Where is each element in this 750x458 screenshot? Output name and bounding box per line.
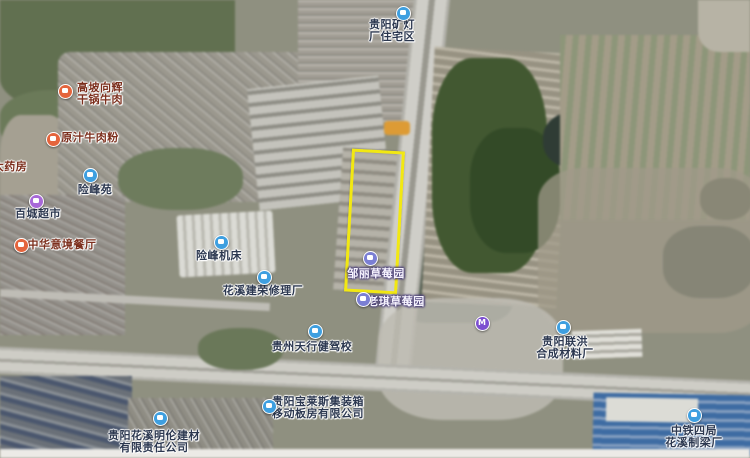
poi-label-line: 贵阳宝莱斯集装箱 [272,396,364,408]
poi-label-line: 原汁牛肉粉 [61,132,119,144]
food-marker-icon[interactable] [58,84,73,99]
gaopo-dry-pot-beef-label[interactable]: 高坡向辉干锅牛肉 [77,82,123,105]
poi-label-line: 贵阳花溪明伦建材 [108,430,200,442]
poi-label-line: 中华意境餐厅 [28,239,97,251]
xianfeng-yuan-label[interactable]: 险峰苑 [78,184,113,196]
satellite-map[interactable]: 贵阳矿灯厂住宅区高坡向辉干锅牛肉原汁牛肉粉大药房险峰苑百城超市中华意境餐厅险峰机… [0,0,750,458]
lianhong-materials-factory-label[interactable]: 贵阳联洪合成材料厂 [536,336,594,359]
food-marker-icon[interactable] [46,132,61,147]
zhonghua-restaurant-label[interactable]: 中华意境餐厅 [28,239,97,251]
yuanzhi-beef-noodles-label[interactable]: 原汁牛肉粉 [61,132,119,144]
poi-label-line: 花溪制梁厂 [665,437,723,449]
zhongtie-beam-factory-label[interactable]: 中铁四局花溪制梁厂 [665,425,723,448]
business-marker-icon[interactable] [262,399,277,414]
minglun-building-materials-label[interactable]: 贵阳花溪明伦建材有限责任公司 [108,430,200,453]
poi-label-line: 厂住宅区 [369,31,415,43]
poi-label-line: 移动板房有限公司 [272,408,364,420]
shopping-marker-icon[interactable] [29,194,44,209]
transit-marker-icon[interactable]: M [475,316,490,331]
baolai-container-housing-label[interactable]: 贵阳宝莱斯集装箱移动板房有限公司 [272,396,364,419]
farm-marker-icon[interactable] [356,292,371,307]
poi-label-line: 老琪草莓园 [367,296,425,308]
poi-label-line: 邹丽草莓园 [347,268,405,280]
laoqi-strawberry-farm-label[interactable]: 老琪草莓园 [367,296,425,308]
zouli-strawberry-farm-label[interactable]: 邹丽草莓园 [347,268,405,280]
huaxi-jianrong-repair-label[interactable]: 花溪建荣修理厂 [223,285,304,297]
business-marker-icon[interactable] [153,411,168,426]
business-marker-icon[interactable] [83,168,98,183]
business-marker-icon[interactable] [687,408,702,423]
poi-label-line: 中铁四局 [665,425,723,437]
poi-label-line: 险峰苑 [78,184,113,196]
poi-label-line: 合成材料厂 [536,348,594,360]
food-marker-icon[interactable] [14,238,29,253]
business-marker-icon[interactable] [214,235,229,250]
poi-label-line: 大药房 [0,161,27,173]
poi-label-line: 险峰机床 [196,250,242,262]
business-marker-icon[interactable] [396,6,411,21]
poi-label-line: 贵州天行健驾校 [272,341,353,353]
tianxingjian-driving-school-label[interactable]: 贵州天行健驾校 [272,341,353,353]
farm-marker-icon[interactable] [363,251,378,266]
business-marker-icon[interactable] [556,320,571,335]
business-marker-icon[interactable] [308,324,323,339]
pharmacy-label[interactable]: 大药房 [0,161,27,173]
poi-label-line: 有限责任公司 [108,442,200,454]
business-marker-icon[interactable] [257,270,272,285]
baicheng-supermarket-label[interactable]: 百城超市 [15,208,61,220]
poi-label-line: 贵阳矿灯 [369,19,415,31]
kuangdeng-residence-label[interactable]: 贵阳矿灯厂住宅区 [369,19,415,42]
poi-label-line: 贵阳联洪 [536,336,594,348]
xianfeng-machine-tools-label[interactable]: 险峰机床 [196,250,242,262]
poi-label-line: 百城超市 [15,208,61,220]
poi-label-line: 花溪建荣修理厂 [223,285,304,297]
poi-label-line: 高坡向辉 [77,82,123,94]
poi-label-line: 干锅牛肉 [77,94,123,106]
